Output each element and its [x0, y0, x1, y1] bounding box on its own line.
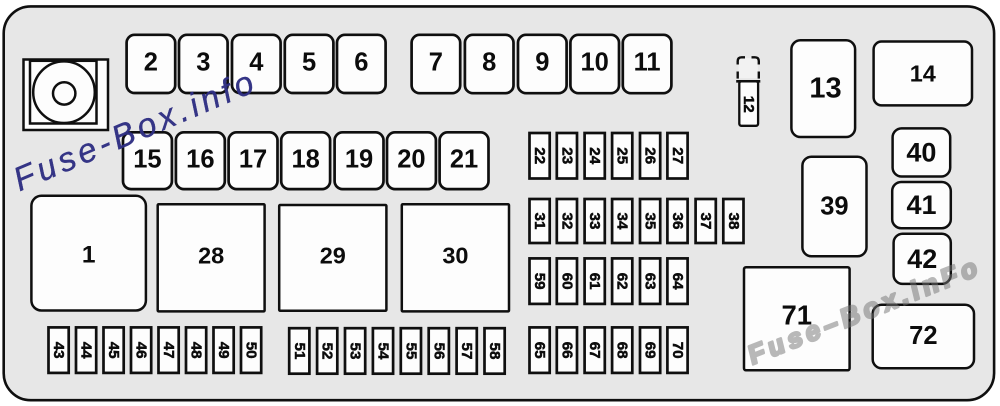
svg-text:38: 38 [725, 213, 742, 230]
svg-text:44: 44 [78, 342, 95, 359]
svg-text:13: 13 [809, 73, 841, 105]
svg-text:53: 53 [347, 342, 364, 359]
svg-text:30: 30 [442, 243, 468, 269]
svg-text:29: 29 [320, 243, 346, 269]
svg-text:36: 36 [669, 213, 686, 230]
svg-text:61: 61 [586, 273, 603, 290]
svg-text:6: 6 [354, 49, 368, 77]
svg-text:12: 12 [740, 96, 757, 113]
svg-text:62: 62 [614, 273, 631, 290]
svg-text:16: 16 [186, 145, 214, 173]
svg-text:25: 25 [614, 147, 631, 164]
svg-text:66: 66 [558, 342, 575, 359]
svg-text:51: 51 [291, 342, 308, 359]
svg-text:60: 60 [558, 273, 575, 290]
svg-text:56: 56 [430, 342, 447, 359]
svg-text:26: 26 [642, 147, 659, 164]
svg-text:2: 2 [144, 49, 158, 77]
svg-text:47: 47 [160, 342, 177, 359]
svg-text:34: 34 [614, 213, 631, 230]
svg-text:63: 63 [642, 273, 659, 290]
svg-text:20: 20 [397, 145, 425, 173]
svg-text:10: 10 [581, 49, 609, 77]
svg-text:54: 54 [375, 342, 392, 359]
svg-text:41: 41 [906, 190, 936, 220]
svg-text:31: 31 [531, 213, 548, 230]
svg-text:35: 35 [642, 213, 659, 230]
svg-text:64: 64 [669, 273, 686, 290]
svg-text:7: 7 [429, 49, 443, 77]
svg-text:1: 1 [82, 241, 96, 268]
svg-text:48: 48 [188, 342, 205, 359]
svg-text:46: 46 [133, 342, 150, 359]
svg-text:18: 18 [291, 145, 319, 173]
svg-text:67: 67 [586, 342, 603, 359]
svg-text:39: 39 [820, 193, 848, 221]
svg-text:9: 9 [535, 49, 549, 77]
svg-text:14: 14 [910, 60, 936, 86]
svg-text:40: 40 [906, 137, 936, 167]
svg-text:70: 70 [669, 342, 686, 359]
svg-text:58: 58 [486, 342, 503, 359]
svg-text:3: 3 [196, 49, 210, 77]
svg-text:37: 37 [697, 213, 714, 230]
svg-text:11: 11 [634, 49, 661, 77]
svg-text:28: 28 [198, 243, 224, 269]
svg-text:57: 57 [458, 342, 475, 359]
svg-text:19: 19 [345, 145, 373, 173]
svg-text:27: 27 [669, 147, 686, 164]
svg-text:45: 45 [105, 342, 122, 359]
svg-text:72: 72 [909, 322, 937, 350]
svg-text:33: 33 [586, 213, 603, 230]
svg-text:24: 24 [586, 147, 603, 164]
svg-text:17: 17 [239, 145, 267, 173]
svg-text:5: 5 [302, 49, 316, 77]
svg-text:8: 8 [482, 49, 496, 77]
svg-text:22: 22 [531, 147, 548, 164]
svg-text:59: 59 [531, 273, 548, 290]
svg-text:65: 65 [531, 342, 548, 359]
svg-text:21: 21 [450, 145, 478, 173]
svg-text:23: 23 [558, 147, 575, 164]
svg-text:49: 49 [215, 342, 232, 359]
svg-text:69: 69 [642, 342, 659, 359]
svg-text:50: 50 [243, 342, 260, 359]
svg-text:55: 55 [402, 342, 419, 359]
svg-text:43: 43 [50, 342, 67, 359]
svg-text:32: 32 [558, 213, 575, 230]
svg-text:52: 52 [319, 342, 336, 359]
svg-text:68: 68 [614, 342, 631, 359]
